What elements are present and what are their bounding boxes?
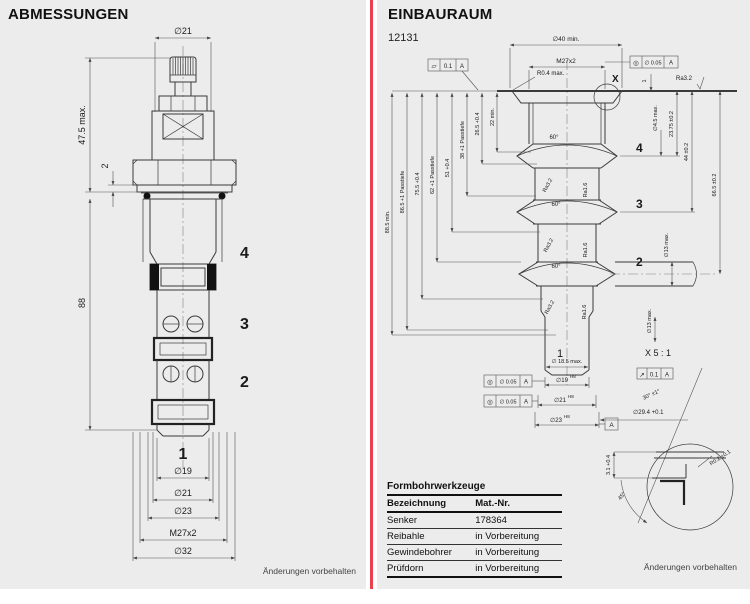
- form-tools-table: Formbohrwerkzeuge Bezeichnung Mat.-Nr. S…: [387, 481, 562, 578]
- tool-matnr: in Vorbereitung: [475, 561, 562, 578]
- surface-ra16-3: Ra1.6: [582, 305, 588, 320]
- concentricity-2-datum: A: [524, 400, 528, 406]
- concentricity-top-symbol: ◎: [633, 60, 639, 67]
- dim-d23-h8: ∅23: [550, 417, 563, 424]
- valve-dimension-drawing: 4 3 2 1 ∅21 47.5 max. 2 88 ∅19: [0, 26, 366, 582]
- dim-d21-fit: H8: [568, 394, 574, 399]
- table-header-matnr: Mat.-Nr.: [475, 496, 562, 512]
- dim-d40: ∅40 min.: [553, 36, 580, 43]
- detail-title: X 5 : 1: [645, 348, 671, 358]
- tool-name: Senker: [387, 512, 475, 529]
- depth-62: 62 +1 Passtiefe: [430, 156, 436, 194]
- red-divider-line: [370, 0, 373, 589]
- dim-washer: 2: [100, 163, 110, 168]
- port-4-label: 4: [240, 245, 249, 262]
- runout-symbol: ↗: [639, 372, 644, 379]
- o-ring-left: [144, 193, 151, 200]
- tool-name: Reibahle: [387, 529, 475, 545]
- surface-ra16-1: Ra1.6: [583, 183, 589, 198]
- dim-d21-h8: ∅21: [554, 397, 567, 404]
- table-row: Gewindebohrer in Vorbereitung: [387, 545, 562, 561]
- datasheet-page: ABMESSUNGEN EINBAURAUM 12131: [0, 0, 750, 604]
- groove-angle-4: 60°: [549, 135, 559, 141]
- o-ring-right: [219, 193, 226, 200]
- depth-75-5: 75.5 +0.4: [415, 172, 421, 195]
- concentricity-1-datum: A: [524, 380, 528, 386]
- dim-d29-4: ∅29.4 +0.1: [633, 409, 664, 416]
- groove-angle-3: 60°: [551, 202, 561, 208]
- dim-1: 1: [642, 79, 648, 82]
- dim-44: 44 ±0.2: [684, 143, 690, 161]
- concentricity-2-tolerance: ∅ 0.05: [499, 399, 516, 406]
- dim-d21: ∅21: [174, 488, 192, 498]
- tool-matnr: in Vorbereitung: [475, 545, 562, 561]
- dim-d19: ∅19: [174, 466, 192, 476]
- depth-38: 38 +1 Passtiefe: [460, 121, 466, 159]
- dim-23-75: 23.75 ±0.2: [669, 111, 675, 137]
- datum-a-box: A: [609, 422, 614, 429]
- surface-ra16-2: Ra1.6: [583, 243, 589, 258]
- runout-datum: A: [665, 373, 669, 379]
- dim-d32: ∅32: [174, 546, 192, 556]
- valve-dimensions: ∅21 47.5 max. 2 88 ∅19 ∅21 ∅23: [77, 26, 235, 561]
- detail-x: X 5 : 1 3.1 +0.4 45° R0.2 ±0.1: [606, 348, 733, 530]
- dim-d13-a: ∅13 max.: [663, 232, 670, 257]
- dim-d13-b: ∅13 max.: [646, 308, 653, 333]
- cavity-port-3: 3: [636, 197, 643, 211]
- concentricity-2-symbol: ◎: [487, 399, 493, 406]
- concentricity-top-datum: A: [669, 61, 673, 67]
- dim-66-5: 66.5 ±0.2: [712, 174, 718, 197]
- port-1-label: 1: [179, 446, 188, 463]
- flatness-tolerance: 0.1: [444, 64, 453, 70]
- abmessungen-title: ABMESSUNGEN: [8, 6, 129, 23]
- flatness-symbol: ▱: [432, 63, 438, 70]
- depth-26-5: 26.5 +0.4: [475, 112, 481, 135]
- port-2-label: 2: [240, 374, 249, 391]
- depth-dimensions: 88.5 min. 86.5 +1 Passtiefe 75.5 +0.4 62…: [385, 93, 556, 335]
- table-row: Senker 178364: [387, 512, 562, 529]
- dim-thread-cavity: M27x2: [556, 58, 576, 65]
- table-row: Reibahle in Vorbereitung: [387, 529, 562, 545]
- cavity-port-4: 4: [636, 141, 643, 155]
- einbauraum-title: EINBAURAUM: [388, 6, 493, 23]
- dim-d18-5: ∅ 18.5 max.: [552, 358, 583, 365]
- detail-x-marker: X: [612, 74, 619, 85]
- dim-d23-fit: H8: [564, 414, 570, 419]
- groove-angle-2: 60°: [551, 264, 561, 270]
- concentricity-1-tolerance: ∅ 0.05: [499, 379, 516, 386]
- valve-outline: [133, 46, 236, 468]
- port-3-label: 3: [240, 316, 249, 333]
- detail-angle: 45°: [617, 491, 627, 501]
- tool-matnr: in Vorbereitung: [475, 529, 562, 545]
- tool-matnr: 178364: [475, 512, 562, 529]
- dim-d19-fit: H8: [570, 374, 576, 379]
- dim-r04: R0.4 max.: [537, 71, 565, 77]
- surface-ra32-2: Ra3.2: [543, 238, 555, 254]
- cavity-port-2: 2: [636, 255, 643, 269]
- concentricity-1-symbol: ◎: [487, 379, 493, 386]
- dim-length: 88: [77, 298, 87, 308]
- side-dimensions: ∅4.5 max. 23.75 ±0.2 44 ±0.2 66.5 ±0.2 ∅…: [620, 91, 720, 342]
- dim-d19-h8: ∅19: [556, 377, 569, 384]
- tool-name: Prüfdorn: [387, 561, 475, 578]
- bore-dimensions: ∅ 18.5 max. ∅19 H8 ∅21 H8 ∅23 H8 A ◎ ∅ 0…: [484, 358, 688, 430]
- surface-ra32-3: Ra3.2: [544, 300, 556, 316]
- cavity-installation-drawing: 60° 60° 60° Ra3.2 Ra3.2 Ra3.2 Ra1.6 Ra1.…: [380, 26, 750, 538]
- right-footer-note: Änderungen vorbehalten: [597, 562, 737, 572]
- concentricity-top-tolerance: ∅ 0.05: [644, 60, 661, 67]
- dim-d23: ∅23: [174, 506, 192, 516]
- detail-depth: 3.1 +0.4: [606, 455, 612, 475]
- cavity-outline: [392, 60, 737, 385]
- top-dimensions: ∅40 min. M27x2 R0.4 max. ▱ 0.1 A ◎ ∅ 0.0…: [428, 36, 704, 110]
- depth-86-5: 86.5 +1 Passtiefe: [400, 171, 406, 214]
- runout-tolerance: 0.1: [650, 373, 659, 379]
- surface-ra32-face: Ra3.2: [676, 76, 693, 82]
- flatness-datum: A: [460, 64, 464, 70]
- table-row: Prüfdorn in Vorbereitung: [387, 561, 562, 578]
- dim-thread: M27x2: [169, 528, 196, 538]
- dim-height-max: 47.5 max.: [77, 105, 87, 145]
- table-title: Formbohrwerkzeuge: [387, 481, 562, 496]
- surface-ra32-1: Ra3.2: [542, 178, 554, 194]
- tool-name: Gewindebohrer: [387, 545, 475, 561]
- dim-d45: ∅4.5 max.: [652, 105, 659, 131]
- left-footer-note: Änderungen vorbehalten: [200, 566, 356, 576]
- dim-d21-top: ∅21: [174, 26, 192, 36]
- dim-30deg: 30° ±1°: [642, 389, 661, 402]
- depth-88-5: 88.5 min.: [385, 210, 391, 233]
- depth-22: 22 min.: [490, 108, 496, 127]
- depth-51: 51 +0.4: [445, 159, 451, 178]
- table-header-bezeichnung: Bezeichnung: [387, 496, 475, 512]
